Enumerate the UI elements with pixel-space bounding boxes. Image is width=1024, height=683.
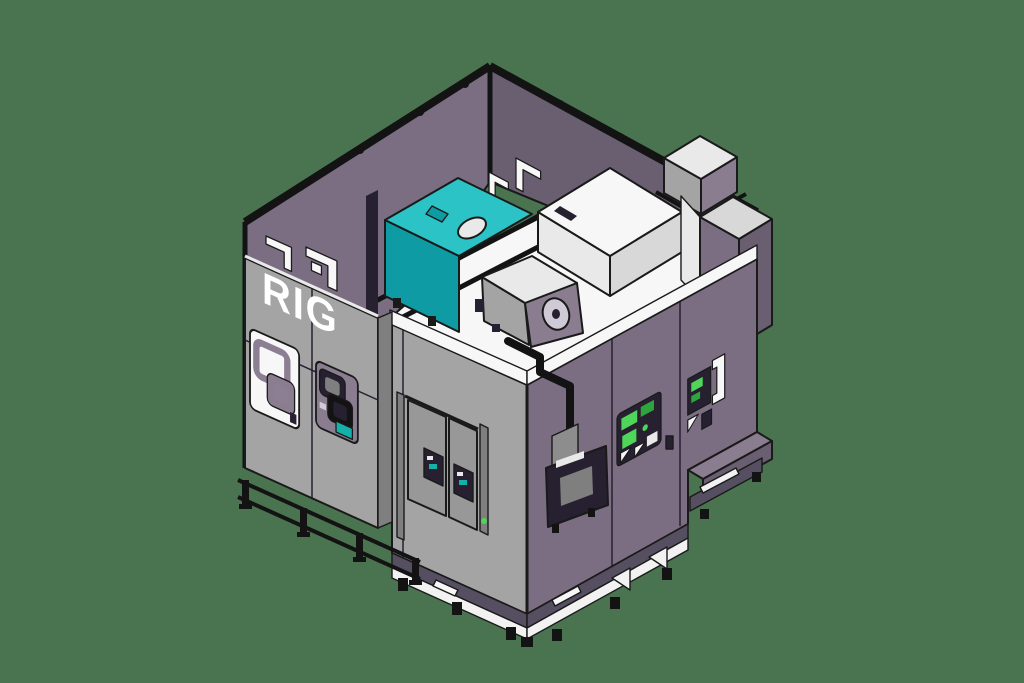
latch-teal-glint — [459, 480, 467, 485]
pendant-foot — [552, 524, 559, 533]
machine-render: RIG — [0, 0, 1024, 683]
blower-foot — [492, 324, 500, 332]
status-led — [481, 518, 487, 524]
hopper-foot — [752, 472, 761, 482]
latch-teal-glint — [429, 464, 437, 469]
blower-nub — [475, 299, 484, 312]
scene-canvas: RIG — [0, 0, 1024, 683]
blower-dial-hub — [552, 309, 560, 319]
door-jamb — [397, 392, 404, 540]
latch-glint — [457, 472, 463, 476]
rig-panel-side-sliver — [378, 312, 392, 528]
latch-glint — [427, 456, 433, 460]
face-detail-block — [666, 436, 673, 449]
pendant-foot — [588, 508, 595, 517]
hopper-foot — [700, 509, 709, 519]
